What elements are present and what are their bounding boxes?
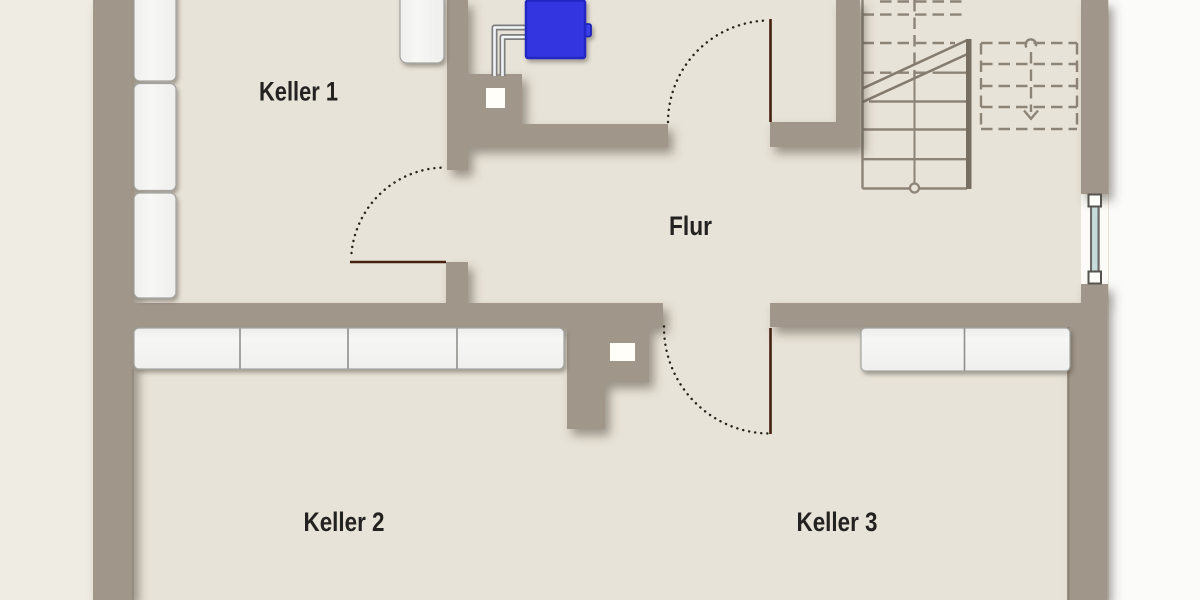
svg-text:Keller 1: Keller 1 [259,77,338,107]
svg-text:Flur: Flur [669,211,712,241]
svg-text:Keller 2: Keller 2 [304,507,385,537]
svg-text:Keller 3: Keller 3 [797,507,878,537]
